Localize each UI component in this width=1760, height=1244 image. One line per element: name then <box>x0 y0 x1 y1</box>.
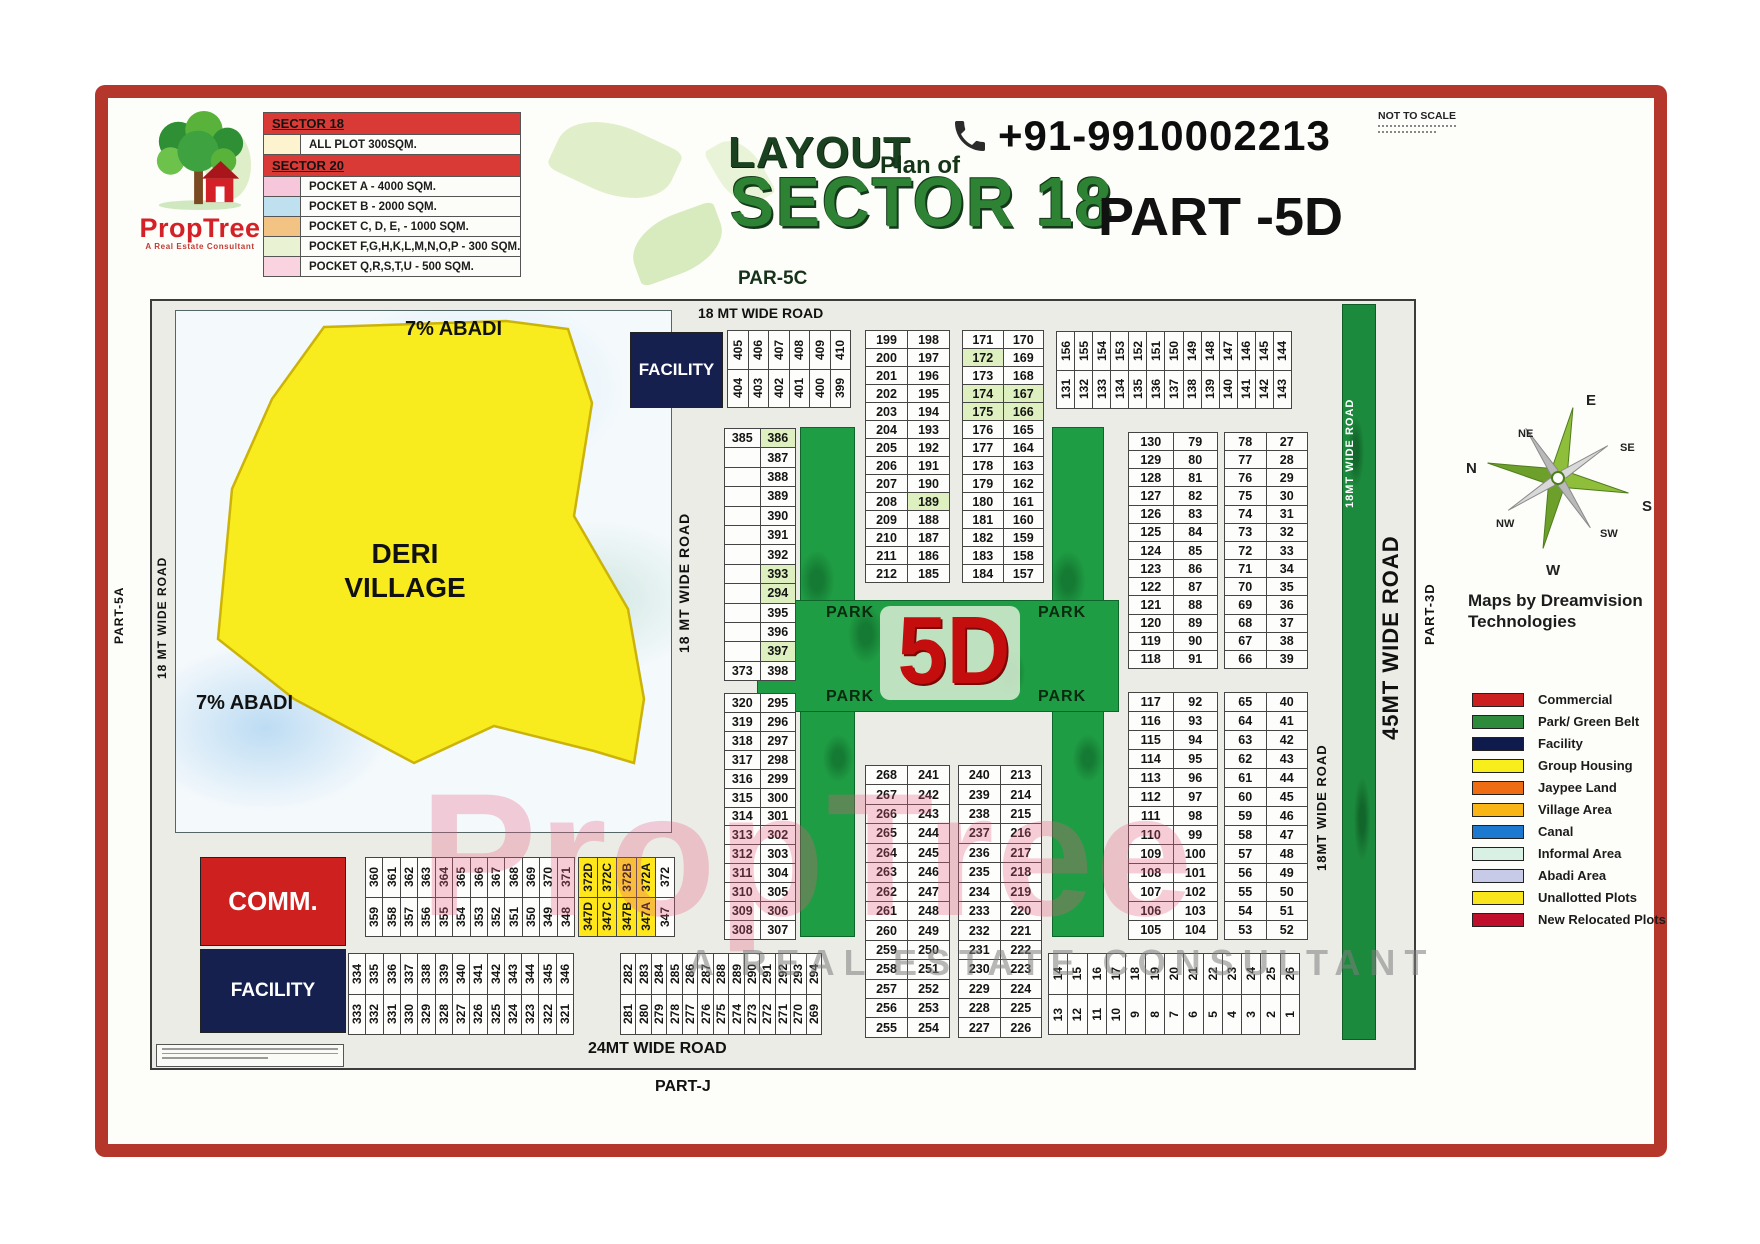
plot-372D: 372D <box>579 858 597 897</box>
plot-70: 70 <box>1225 578 1266 595</box>
legend-row: Canal <box>1472 824 1666 839</box>
plot-201: 201 <box>866 367 907 384</box>
plot-234: 234 <box>959 883 1000 901</box>
note-subline <box>1378 125 1456 128</box>
plot-277: 277 <box>683 995 697 1035</box>
legend-swatch <box>1472 847 1524 861</box>
plot-164: 164 <box>1004 439 1044 456</box>
plot-empty <box>725 623 760 641</box>
facility-block-top: FACILITY <box>630 332 723 408</box>
plot-empty <box>725 526 760 544</box>
plot-209: 209 <box>866 511 907 528</box>
plot-222: 222 <box>1001 941 1042 959</box>
plot-200: 200 <box>866 349 907 366</box>
plot-347A: 347A <box>637 898 655 937</box>
plot-208: 208 <box>866 493 907 510</box>
plot-table-label: SECTOR 18 <box>264 113 520 134</box>
plot-table-row: POCKET A - 4000 SQM. <box>264 177 520 196</box>
plot-table-header-row: SECTOR 20 <box>264 155 520 176</box>
maps-by-credit: Maps by Dreamvision Technologies <box>1468 590 1643 633</box>
tree-logo-icon <box>141 110 259 210</box>
plot-213: 213 <box>1001 766 1042 784</box>
plot-table-row: ALL PLOT 300SQM. <box>264 135 520 154</box>
plot-table-label: POCKET A - 4000 SQM. <box>301 177 520 196</box>
plot-130: 130 <box>1129 433 1173 450</box>
plot-151: 151 <box>1147 332 1164 370</box>
plot-empty <box>725 468 760 486</box>
plot-119: 119 <box>1129 633 1173 650</box>
plot-32: 32 <box>1267 524 1308 541</box>
plot-318: 318 <box>725 732 760 750</box>
disclaimer-box <box>156 1044 344 1067</box>
plot-240: 240 <box>959 766 1000 784</box>
plot-empty <box>725 545 760 563</box>
plot-54: 54 <box>1225 902 1266 920</box>
plot-301: 301 <box>761 808 796 826</box>
plot-87: 87 <box>1174 578 1218 595</box>
not-to-scale-note: NOT TO SCALE <box>1378 110 1456 134</box>
compass-e: E <box>1586 392 1596 409</box>
plot-329: 329 <box>418 995 434 1035</box>
plot-strip-348-371: 3603593613583623573633563643553653543663… <box>365 857 575 937</box>
plot-132: 132 <box>1075 371 1092 409</box>
plot-169: 169 <box>1004 349 1044 366</box>
plot-229: 229 <box>959 980 1000 998</box>
plot-228: 228 <box>959 999 1000 1017</box>
plot-154: 154 <box>1093 332 1110 370</box>
plot-grid-157-184: 1711701721691731681741671751661761651771… <box>962 330 1044 583</box>
disclaimer-text-line <box>162 1057 268 1059</box>
plot-100: 100 <box>1174 845 1218 863</box>
legend-label: Facility <box>1538 736 1583 751</box>
legend-swatch <box>1472 781 1524 795</box>
plot-215: 215 <box>1001 805 1042 823</box>
plot-74: 74 <box>1225 506 1266 523</box>
park-label-bottom-left: PARK <box>826 688 874 706</box>
plot-grid-40-65: 6540644163426243614460455946584757485649… <box>1224 692 1308 940</box>
plot-3: 3 <box>1242 995 1260 1035</box>
plot-table-label: SECTOR 20 <box>264 155 520 176</box>
plot-156: 156 <box>1057 332 1074 370</box>
village-name-line1: DERI <box>330 538 480 570</box>
plot-369: 369 <box>523 858 539 897</box>
plot-76: 76 <box>1225 469 1266 486</box>
compass-se: SE <box>1620 442 1635 454</box>
legend-label: Abadi Area <box>1538 868 1606 883</box>
plot-332: 332 <box>366 995 382 1035</box>
legend-label: Commercial <box>1538 692 1612 707</box>
plot-327: 327 <box>453 995 469 1035</box>
plot-256: 256 <box>866 999 907 1017</box>
plot-342: 342 <box>488 954 504 994</box>
plot-264: 264 <box>866 844 907 862</box>
plot-135: 135 <box>1129 371 1146 409</box>
plot-173: 173 <box>963 367 1003 384</box>
plot-190: 190 <box>908 475 949 492</box>
color-swatch <box>264 257 300 276</box>
plot-293: 293 <box>791 954 805 994</box>
plot-25: 25 <box>1261 954 1279 994</box>
plot-255: 255 <box>866 1018 907 1036</box>
plot-316: 316 <box>725 770 760 788</box>
plot-136: 136 <box>1147 371 1164 409</box>
legend-row: Village Area <box>1472 802 1666 817</box>
plot-111: 111 <box>1129 807 1173 825</box>
plot-348: 348 <box>558 898 574 937</box>
village-name-line2: VILLAGE <box>330 572 480 604</box>
plot-299: 299 <box>761 770 796 788</box>
plot-309: 309 <box>725 902 760 920</box>
plot-144: 144 <box>1274 332 1291 370</box>
title-sector: SECTOR 18 <box>730 162 1114 242</box>
plot-92: 92 <box>1174 693 1218 711</box>
plot-249: 249 <box>908 921 949 939</box>
plot-279: 279 <box>652 995 666 1035</box>
plot-406: 406 <box>749 331 769 369</box>
plot-148: 148 <box>1202 332 1219 370</box>
plot-245: 245 <box>908 844 949 862</box>
plot-120: 120 <box>1129 615 1173 632</box>
legend-label: Canal <box>1538 824 1573 839</box>
plot-8: 8 <box>1146 995 1164 1035</box>
compass-s: S <box>1642 498 1652 515</box>
compass-w: W <box>1546 562 1560 579</box>
plot-15: 15 <box>1068 954 1086 994</box>
plot-244: 244 <box>908 824 949 842</box>
legend-row: Group Housing <box>1472 758 1666 773</box>
legend-row: Abadi Area <box>1472 868 1666 883</box>
legend-label: Jaypee Land <box>1538 780 1617 795</box>
sector-5d-label: 5D <box>884 592 1024 710</box>
plot-366: 366 <box>471 858 487 897</box>
plot-345: 345 <box>539 954 555 994</box>
plot-372C: 372C <box>598 858 616 897</box>
plot-strip-347-372: 372D347D372C347C372B347B372A347A372347 <box>578 857 675 937</box>
plot-306: 306 <box>761 902 796 920</box>
plot-table-row: POCKET B - 2000 SQM. <box>264 197 520 216</box>
plot-147: 147 <box>1220 332 1237 370</box>
plot-199: 199 <box>866 331 907 348</box>
plot-184: 184 <box>963 565 1003 582</box>
plot-33: 33 <box>1267 542 1308 559</box>
plot-251: 251 <box>908 960 949 978</box>
plot-23: 23 <box>1223 954 1241 994</box>
disclaimer-text-line <box>162 1048 338 1050</box>
plot-219: 219 <box>1001 883 1042 901</box>
plot-405: 405 <box>728 331 748 369</box>
compass-ne: NE <box>1518 428 1533 440</box>
part-5a-label: PART-5A <box>112 570 126 660</box>
plot-307: 307 <box>761 921 796 939</box>
legend-swatch <box>1472 869 1524 883</box>
plot-94: 94 <box>1174 731 1218 749</box>
plot-158: 158 <box>1004 547 1044 564</box>
plot-134: 134 <box>1111 371 1128 409</box>
plot-grid-241-268: 2682412672422662432652442642452632462622… <box>865 765 950 1038</box>
plot-43: 43 <box>1267 750 1308 768</box>
plot-116: 116 <box>1129 712 1173 730</box>
legend-row: Commercial <box>1472 692 1666 707</box>
plot-84: 84 <box>1174 524 1218 541</box>
plot-325: 325 <box>488 995 504 1035</box>
plot-168: 168 <box>1004 367 1044 384</box>
plot-267: 267 <box>866 785 907 803</box>
plot-121: 121 <box>1129 596 1173 613</box>
plot-16: 16 <box>1088 954 1106 994</box>
plot-278: 278 <box>667 995 681 1035</box>
plot-408: 408 <box>790 331 810 369</box>
plot-114: 114 <box>1129 750 1173 768</box>
plot-strip-131-156: 1561311551321541331531341521351511361501… <box>1056 331 1292 409</box>
plot-283: 283 <box>636 954 650 994</box>
plot-187: 187 <box>908 529 949 546</box>
plot-58: 58 <box>1225 826 1266 844</box>
plot-360: 360 <box>366 858 382 897</box>
plot-254: 254 <box>908 1018 949 1036</box>
plot-131: 131 <box>1057 371 1074 409</box>
plot-233: 233 <box>959 902 1000 920</box>
plot-290: 290 <box>745 954 759 994</box>
note-subline-2 <box>1378 131 1436 134</box>
plot-143: 143 <box>1274 371 1291 409</box>
plot-empty <box>725 642 760 660</box>
plot-88: 88 <box>1174 596 1218 613</box>
plot-291: 291 <box>760 954 774 994</box>
plot-19: 19 <box>1146 954 1164 994</box>
plot-192: 192 <box>908 439 949 456</box>
plot-152: 152 <box>1129 332 1146 370</box>
road-label-inner-18mt: 18 MT WIDE ROAD <box>676 495 692 670</box>
plot-389: 389 <box>761 487 796 505</box>
plot-strip-321-346: 3343333353323363313373303383293393283403… <box>348 953 574 1035</box>
plot-93: 93 <box>1174 712 1218 730</box>
plot-226: 226 <box>1001 1018 1042 1036</box>
plot-338: 338 <box>418 954 434 994</box>
plot-204: 204 <box>866 421 907 438</box>
plot-40: 40 <box>1267 693 1308 711</box>
plot-359: 359 <box>366 898 382 937</box>
plot-402: 402 <box>769 370 789 408</box>
plot-259: 259 <box>866 941 907 959</box>
plot-410: 410 <box>831 331 851 369</box>
road-label-right-18mt-upper: 18MT WIDE ROAD <box>1344 388 1356 518</box>
plot-46: 46 <box>1267 807 1308 825</box>
legend-row: Informal Area <box>1472 846 1666 861</box>
plot-337: 337 <box>401 954 417 994</box>
legend-label: Park/ Green Belt <box>1538 714 1639 729</box>
plot-grid-79-130: 1307912980128811278212683125841248512386… <box>1128 432 1218 669</box>
plot-334: 334 <box>349 954 365 994</box>
plot-238: 238 <box>959 805 1000 823</box>
plot-285: 285 <box>667 954 681 994</box>
road-label-top-18mt: 18 MT WIDE ROAD <box>698 305 823 321</box>
legend-swatch <box>1472 913 1524 927</box>
plot-265: 265 <box>866 824 907 842</box>
plot-365: 365 <box>453 858 469 897</box>
plot-105: 105 <box>1129 921 1173 939</box>
color-swatch <box>264 217 300 236</box>
plot-364: 364 <box>436 858 452 897</box>
plot-311: 311 <box>725 864 760 882</box>
plot-table-row: POCKET Q,R,S,T,U - 500 SQM. <box>264 257 520 276</box>
plot-197: 197 <box>908 349 949 366</box>
plot-347B: 347B <box>617 898 635 937</box>
plot-20: 20 <box>1165 954 1183 994</box>
plot-336: 336 <box>384 954 400 994</box>
plot-36: 36 <box>1267 596 1308 613</box>
plot-1: 1 <box>1281 995 1299 1035</box>
plot-31: 31 <box>1267 506 1308 523</box>
plot-320: 320 <box>725 694 760 712</box>
plot-112: 112 <box>1129 788 1173 806</box>
plot-159: 159 <box>1004 529 1044 546</box>
plot-315: 315 <box>725 789 760 807</box>
commercial-block: COMM. <box>200 857 346 946</box>
legend-swatch <box>1472 715 1524 729</box>
plot-280: 280 <box>636 995 650 1035</box>
plot-86: 86 <box>1174 560 1218 577</box>
plot-109: 109 <box>1129 845 1173 863</box>
plot-189: 189 <box>908 493 949 510</box>
plot-220: 220 <box>1001 902 1042 920</box>
plot-45: 45 <box>1267 788 1308 806</box>
legend-label: Village Area <box>1538 802 1612 817</box>
plot-124: 124 <box>1129 542 1173 559</box>
plot-349: 349 <box>540 898 556 937</box>
plot-table-header-row: SECTOR 18 <box>264 113 520 134</box>
plot-341: 341 <box>470 954 486 994</box>
plot-141: 141 <box>1238 371 1255 409</box>
plot-155: 155 <box>1075 332 1092 370</box>
plot-250: 250 <box>908 941 949 959</box>
plot-182: 182 <box>963 529 1003 546</box>
abadi-label-top: 7% ABADI <box>405 318 502 341</box>
plot-183: 183 <box>963 547 1003 564</box>
legend-row: Park/ Green Belt <box>1472 714 1666 729</box>
plot-276: 276 <box>698 995 712 1035</box>
plot-261: 261 <box>866 902 907 920</box>
phone-icon <box>950 116 990 156</box>
plot-401: 401 <box>790 370 810 408</box>
plot-77: 77 <box>1225 451 1266 468</box>
plot-95: 95 <box>1174 750 1218 768</box>
legend-swatch <box>1472 891 1524 905</box>
plot-115: 115 <box>1129 731 1173 749</box>
plot-308: 308 <box>725 921 760 939</box>
plot-145: 145 <box>1256 332 1273 370</box>
layout-map-page: PropTree A Real Estate Consultant SECTOR… <box>0 0 1760 1244</box>
plot-80: 80 <box>1174 451 1218 468</box>
plot-146: 146 <box>1238 332 1255 370</box>
plot-357: 357 <box>401 898 417 937</box>
plot-180: 180 <box>963 493 1003 510</box>
plot-218: 218 <box>1001 863 1042 881</box>
plot-407: 407 <box>769 331 789 369</box>
plot-207: 207 <box>866 475 907 492</box>
plot-321: 321 <box>557 995 573 1035</box>
plot-273: 273 <box>745 995 759 1035</box>
plot-26: 26 <box>1281 954 1299 994</box>
plot-172: 172 <box>963 349 1003 366</box>
plot-368: 368 <box>505 858 521 897</box>
plot-193: 193 <box>908 421 949 438</box>
plot-166: 166 <box>1004 403 1044 420</box>
plot-294: 294 <box>761 584 796 602</box>
plot-grid-213-240: 2402132392142382152372162362172352182342… <box>958 765 1042 1038</box>
plot-66: 66 <box>1225 651 1266 668</box>
plot-75: 75 <box>1225 487 1266 504</box>
plot-188: 188 <box>908 511 949 528</box>
compass-n: N <box>1466 460 1477 477</box>
plot-323: 323 <box>522 995 538 1035</box>
plot-232: 232 <box>959 921 1000 939</box>
plot-90: 90 <box>1174 633 1218 650</box>
part-j-label: PART-J <box>655 1078 711 1096</box>
plot-225: 225 <box>1001 999 1042 1017</box>
plot-288: 288 <box>714 954 728 994</box>
plot-298: 298 <box>761 751 796 769</box>
plot-grid-27-78: 7827772876297530743173327233713470356936… <box>1224 432 1308 669</box>
plot-353: 353 <box>471 898 487 937</box>
plot-194: 194 <box>908 403 949 420</box>
plot-51: 51 <box>1267 902 1308 920</box>
plot-390: 390 <box>761 507 796 525</box>
plot-table-label: POCKET C, D, E, - 1000 SQM. <box>301 217 520 236</box>
plot-271: 271 <box>776 995 790 1035</box>
plot-322: 322 <box>539 995 555 1035</box>
plot-50: 50 <box>1267 883 1308 901</box>
plot-260: 260 <box>866 921 907 939</box>
plot-72: 72 <box>1225 542 1266 559</box>
legend-swatch <box>1472 825 1524 839</box>
plot-27: 27 <box>1267 433 1308 450</box>
plot-48: 48 <box>1267 845 1308 863</box>
plot-372: 372 <box>656 858 674 897</box>
plot-242: 242 <box>908 785 949 803</box>
park-label-bottom-right: PARK <box>1038 688 1086 706</box>
plot-370: 370 <box>540 858 556 897</box>
plot-126: 126 <box>1129 506 1173 523</box>
plot-177: 177 <box>963 439 1003 456</box>
legend-row: Unallotted Plots <box>1472 890 1666 905</box>
plot-175: 175 <box>963 403 1003 420</box>
plot-108: 108 <box>1129 864 1173 882</box>
plot-262: 262 <box>866 883 907 901</box>
plot-212: 212 <box>866 565 907 582</box>
plot-10: 10 <box>1107 995 1125 1035</box>
plot-274: 274 <box>729 995 743 1035</box>
plot-137: 137 <box>1165 371 1182 409</box>
plot-110: 110 <box>1129 826 1173 844</box>
plot-295: 295 <box>761 694 796 712</box>
plot-181: 181 <box>963 511 1003 528</box>
plot-237: 237 <box>959 824 1000 842</box>
plot-243: 243 <box>908 805 949 823</box>
plot-37: 37 <box>1267 615 1308 632</box>
plot-65: 65 <box>1225 693 1266 711</box>
plot-table-label: POCKET Q,R,S,T,U - 500 SQM. <box>301 257 520 276</box>
legend-swatch <box>1472 803 1524 817</box>
plot-39: 39 <box>1267 651 1308 668</box>
plot-44: 44 <box>1267 769 1308 787</box>
plot-grid-373-398: 3853863873883893903913923932943953963973… <box>724 428 796 681</box>
plot-202: 202 <box>866 385 907 402</box>
road-label-right-18mt-lower: 18MT WIDE ROAD <box>1314 700 1329 915</box>
plot-335: 335 <box>366 954 382 994</box>
plot-28: 28 <box>1267 451 1308 468</box>
plot-347C: 347C <box>598 898 616 937</box>
plot-404: 404 <box>728 370 748 408</box>
